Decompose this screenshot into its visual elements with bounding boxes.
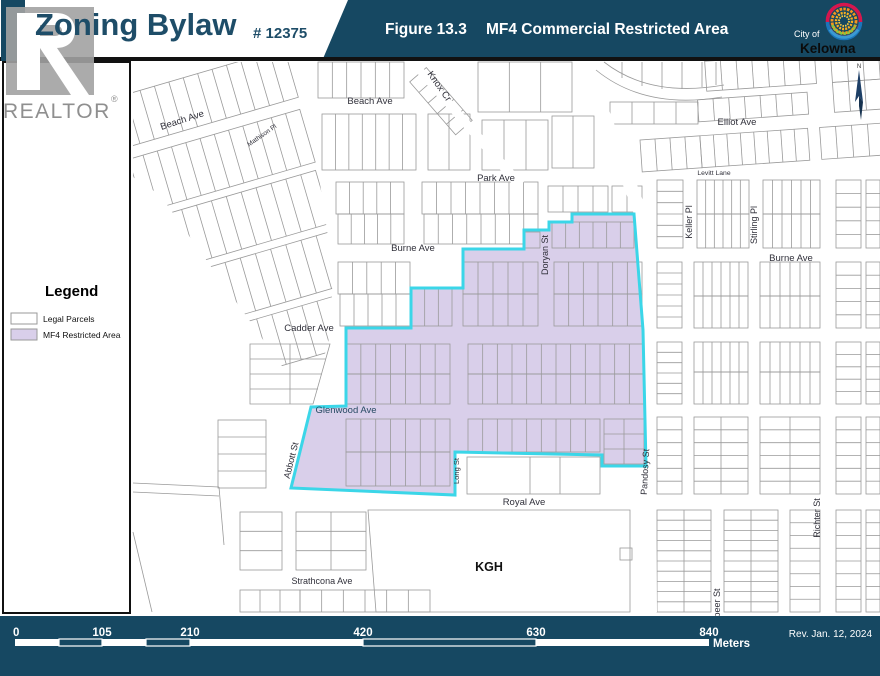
svg-text:Levitt Lane: Levitt Lane <box>697 170 730 177</box>
svg-text:Strathcona Ave: Strathcona Ave <box>292 576 353 586</box>
svg-text:Rev. Jan. 12, 2024: Rev. Jan. 12, 2024 <box>789 629 873 640</box>
svg-text:Burne Ave: Burne Ave <box>391 243 435 254</box>
svg-text:Beach Ave: Beach Ave <box>347 96 392 107</box>
svg-text:KGH: KGH <box>475 560 503 574</box>
svg-text:Elliot Ave: Elliot Ave <box>718 117 757 128</box>
svg-text:105: 105 <box>92 627 112 639</box>
svg-text:420: 420 <box>353 627 372 639</box>
svg-text:Meters: Meters <box>713 638 750 650</box>
svg-text:Burne Ave: Burne Ave <box>769 253 813 264</box>
svg-text:Park Ave: Park Ave <box>477 173 515 184</box>
svg-text:Stirling Pl: Stirling Pl <box>749 206 759 244</box>
svg-text:210: 210 <box>180 627 199 639</box>
svg-text:0: 0 <box>13 627 19 639</box>
svg-text:N: N <box>857 64 861 70</box>
svg-text:Kelowna: Kelowna <box>800 41 856 56</box>
svg-text:Speer St: Speer St <box>712 588 722 616</box>
svg-text:Keller Pl: Keller Pl <box>684 205 694 239</box>
svg-text:Long St: Long St <box>452 457 461 484</box>
svg-text:®: ® <box>111 94 118 104</box>
svg-text:Royal Ave: Royal Ave <box>503 497 546 508</box>
svg-text:Doryan St: Doryan St <box>540 234 550 275</box>
svg-text:MF4 Restricted Area: MF4 Restricted Area <box>43 330 121 340</box>
svg-text:630: 630 <box>526 627 545 639</box>
svg-text:Glenwood Ave: Glenwood Ave <box>315 405 376 416</box>
svg-text:Cadder Ave: Cadder Ave <box>284 323 333 334</box>
svg-text:City of: City of <box>794 29 820 39</box>
svg-text:Richter St: Richter St <box>812 498 822 538</box>
svg-text:Legal Parcels: Legal Parcels <box>43 314 95 324</box>
svg-text:REALTOR: REALTOR <box>3 100 111 123</box>
